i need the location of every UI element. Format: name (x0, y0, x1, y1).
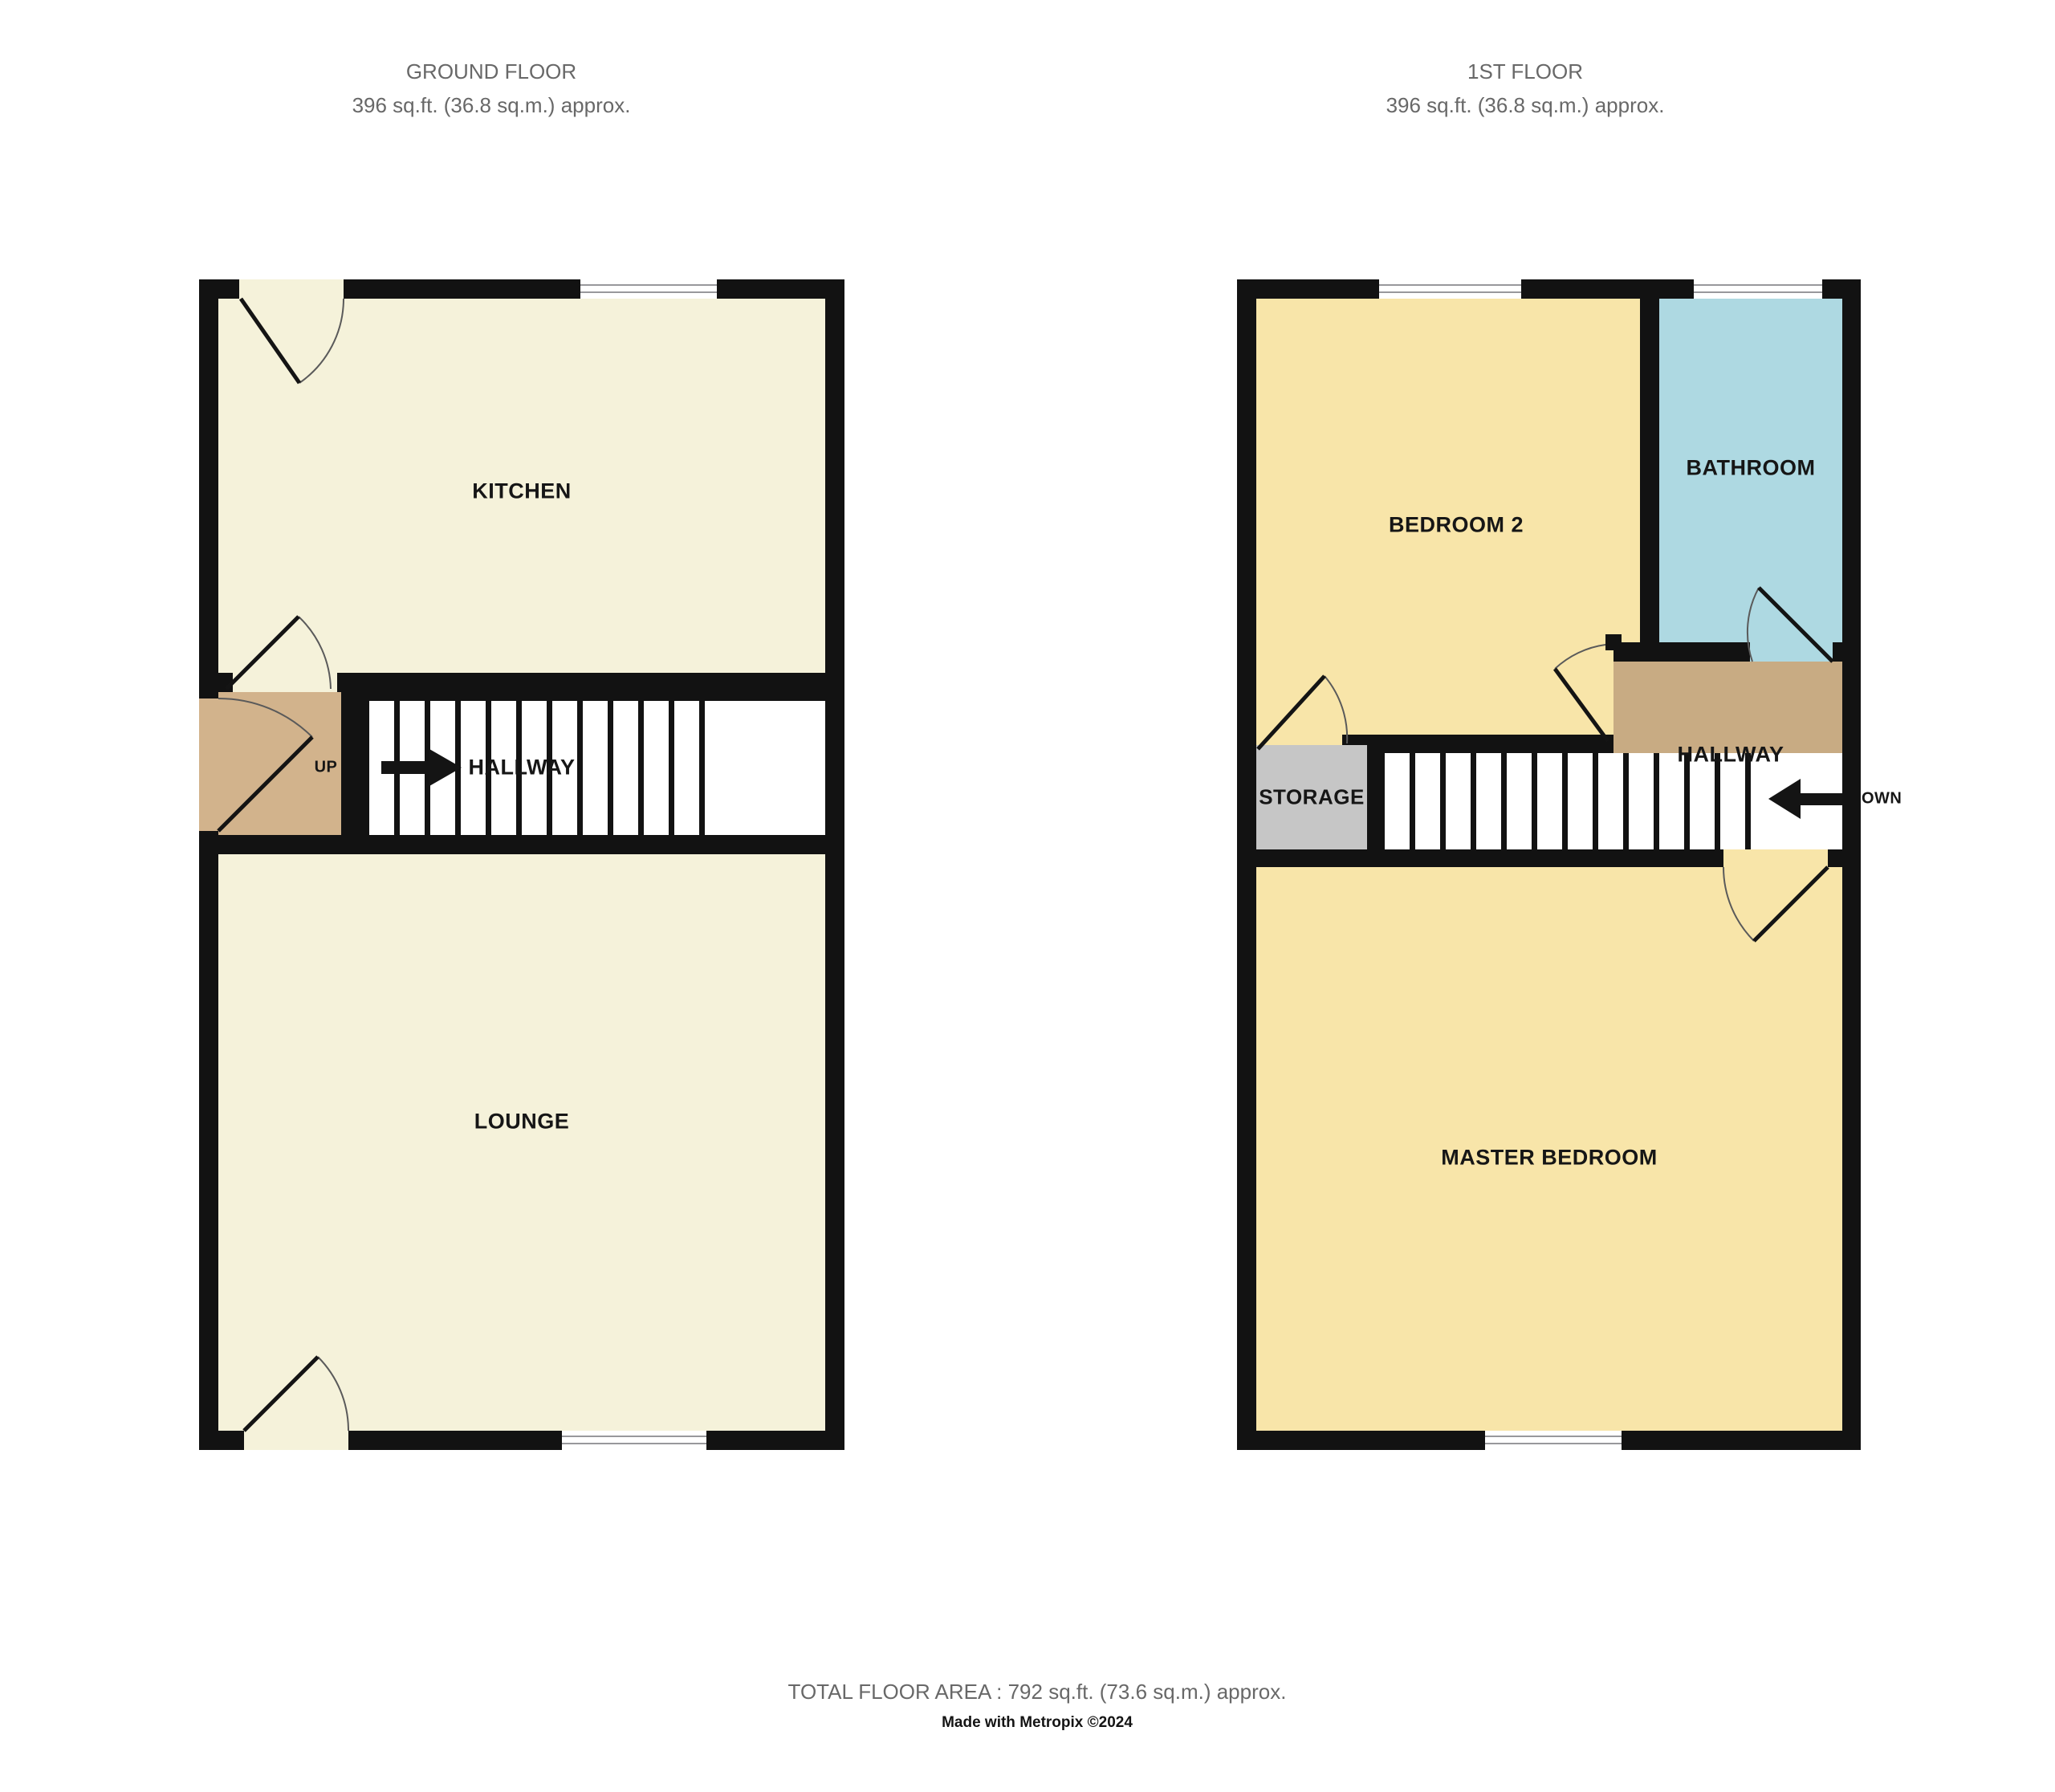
ground-floor-title-line2: 396 sq.ft. (36.8 sq.m.) approx. (170, 88, 812, 122)
front-door-leaf (218, 737, 312, 831)
floorplan-page: { "titles": { "ground_floor": { "line1":… (0, 0, 2055, 1792)
bedroom2-door-arc (1325, 676, 1347, 743)
bathroom-door-arc (1748, 588, 1759, 662)
down-arrow-icon (1768, 779, 1842, 819)
wall-over-down-label (1842, 773, 1861, 825)
kitchen-exterior-door-leaf (241, 299, 299, 383)
bedroom2-label: BEDROOM 2 (1389, 513, 1524, 538)
ground-floor-door-symbols (199, 279, 844, 1450)
ground-floor-plan: KITCHEN UP HALLWAY LOUNGE (199, 279, 844, 1450)
lounge-door-leaf (244, 1357, 318, 1431)
total-floor-area-text: TOTAL FLOOR AREA : 792 sq.ft. (73.6 sq.m… (716, 1680, 1358, 1704)
master-bedroom-label: MASTER BEDROOM (1441, 1146, 1658, 1171)
ground-floor-title: GROUND FLOOR 396 sq.ft. (36.8 sq.m.) app… (170, 55, 812, 122)
bedroom2-hallway-door-arc (1555, 645, 1605, 669)
master-bedroom-door-arc (1723, 867, 1754, 941)
first-floor-title-line2: 396 sq.ft. (36.8 sq.m.) approx. (1204, 88, 1846, 122)
lounge-label: LOUNGE (474, 1110, 570, 1134)
bathroom-label: BATHROOM (1687, 456, 1816, 481)
bathroom-door-leaf (1759, 588, 1833, 662)
first-hallway-label: HALLWAY (1677, 743, 1784, 768)
metropix-credit-text: Made with Metropix ©2024 (716, 1714, 1358, 1732)
storage-label: STORAGE (1259, 785, 1365, 810)
kitchen-exterior-door-arc (299, 299, 344, 383)
kitchen-hallway-door-arc (299, 617, 331, 689)
bedroom2-door-leaf (1258, 676, 1325, 749)
up-arrow-icon (381, 749, 462, 786)
front-door-arc (218, 698, 312, 737)
kitchen-hallway-door-leaf (226, 617, 299, 689)
bedroom2-hallway-door-leaf (1555, 669, 1608, 741)
lounge-door-arc (318, 1357, 348, 1431)
ground-floor-title-line1: GROUND FLOOR (170, 55, 812, 88)
kitchen-label: KITCHEN (472, 479, 572, 504)
up-label: UP (315, 759, 338, 777)
first-floor-plan: BEDROOM 2 BATHROOM HALLWAY STORAGE MASTE… (1237, 279, 1861, 1450)
ground-hallway-label: HALLWAY (468, 755, 575, 780)
first-floor-title-line1: 1ST FLOOR (1204, 55, 1846, 88)
first-floor-title: 1ST FLOOR 396 sq.ft. (36.8 sq.m.) approx… (1204, 55, 1846, 122)
master-bedroom-door-leaf (1754, 867, 1828, 941)
